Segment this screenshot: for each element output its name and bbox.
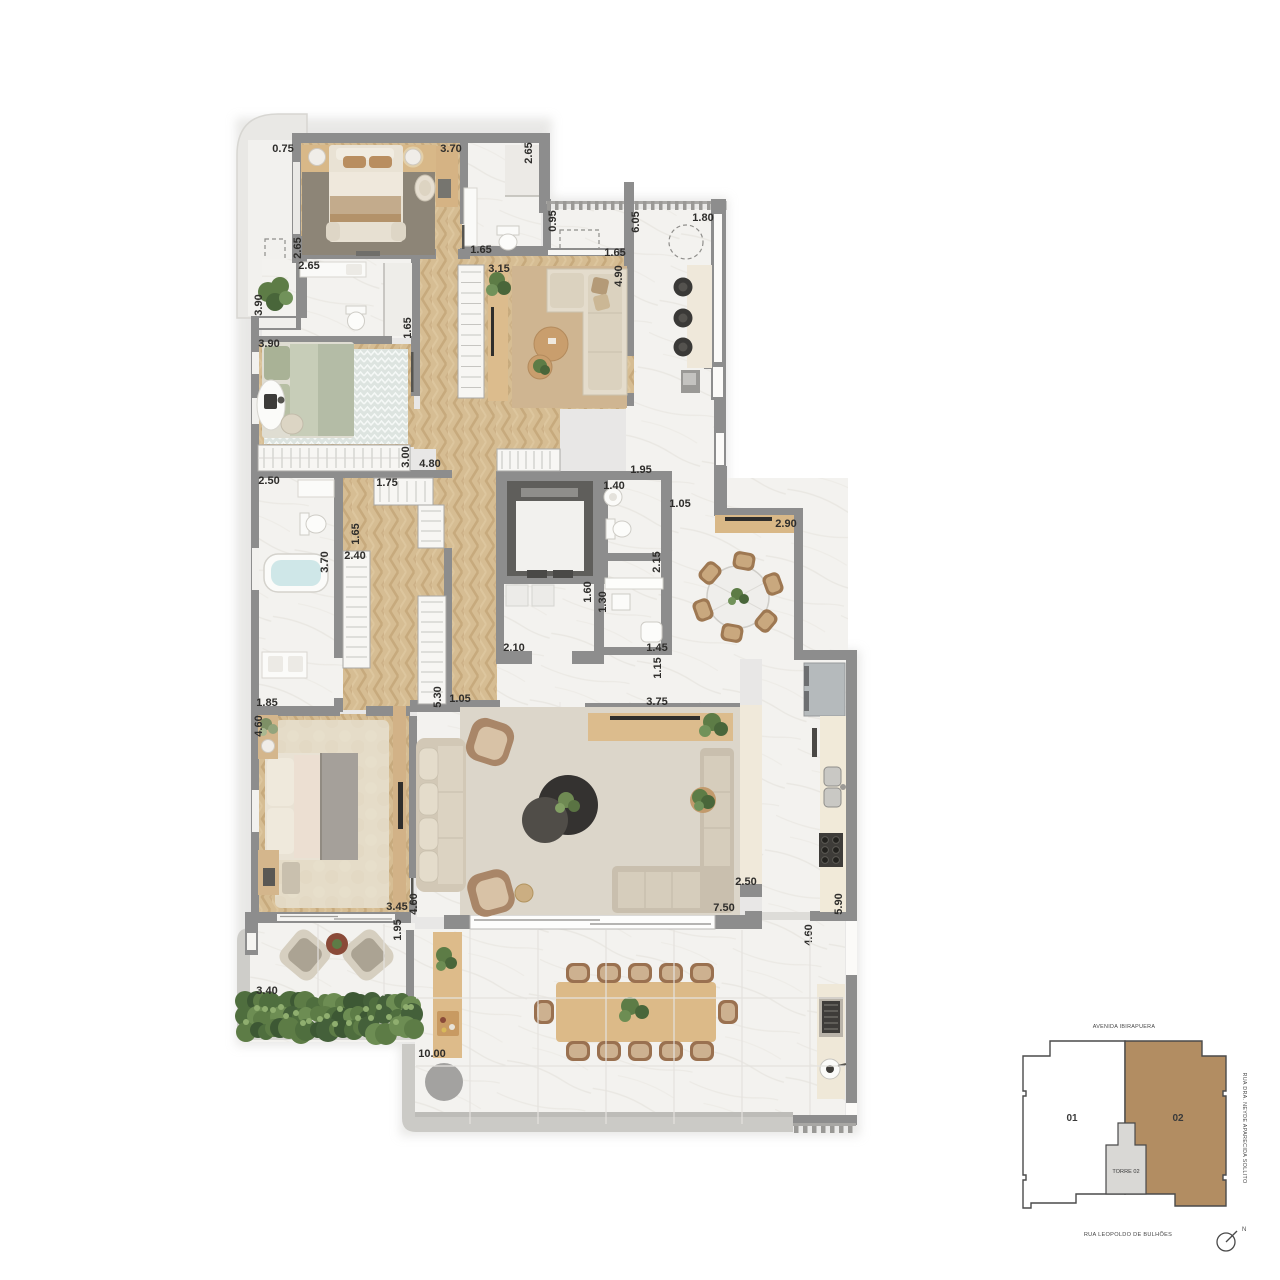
svg-text:1.65: 1.65 <box>604 247 625 259</box>
svg-text:RUA DRA. NEYDE APARECIDA SOLLI: RUA DRA. NEYDE APARECIDA SOLLITO <box>1241 1073 1247 1184</box>
svg-text:5.30: 5.30 <box>432 686 444 707</box>
svg-text:1.95: 1.95 <box>392 919 404 940</box>
svg-text:1.45: 1.45 <box>646 642 667 654</box>
svg-text:1.15: 1.15 <box>652 657 664 678</box>
svg-text:3.45: 3.45 <box>386 901 407 913</box>
svg-text:0.95: 0.95 <box>547 210 559 231</box>
svg-text:1.65: 1.65 <box>350 523 362 544</box>
svg-text:4.90: 4.90 <box>613 265 625 286</box>
svg-text:2.50: 2.50 <box>258 475 279 487</box>
svg-text:3.75: 3.75 <box>646 696 667 708</box>
svg-text:2.10: 2.10 <box>503 642 524 654</box>
svg-text:7.50: 7.50 <box>713 902 734 914</box>
svg-text:2.40: 2.40 <box>344 550 365 562</box>
svg-text:0.75: 0.75 <box>272 143 293 155</box>
svg-text:2.65: 2.65 <box>523 142 535 163</box>
svg-text:RUA LEOPOLDO DE BULHÕES: RUA LEOPOLDO DE BULHÕES <box>1084 1231 1172 1238</box>
svg-text:1.60: 1.60 <box>582 581 594 602</box>
svg-text:3.00: 3.00 <box>400 446 412 467</box>
svg-text:1.75: 1.75 <box>376 477 397 489</box>
svg-text:2.65: 2.65 <box>298 260 319 272</box>
svg-text:4.60: 4.60 <box>253 715 265 736</box>
svg-text:4.60: 4.60 <box>408 893 420 914</box>
svg-text:6.05: 6.05 <box>630 211 642 232</box>
svg-text:4.60: 4.60 <box>803 924 815 945</box>
svg-text:TORRE 02: TORRE 02 <box>1112 1169 1139 1175</box>
svg-text:3.15: 3.15 <box>488 263 509 275</box>
svg-text:02: 02 <box>1172 1113 1184 1124</box>
svg-text:3.40: 3.40 <box>256 985 277 997</box>
svg-text:3.90: 3.90 <box>253 294 265 315</box>
svg-text:5.90: 5.90 <box>833 893 845 914</box>
svg-text:N: N <box>1242 1227 1246 1233</box>
svg-text:3.90: 3.90 <box>258 338 279 350</box>
svg-text:2.50: 2.50 <box>735 876 756 888</box>
svg-text:1.05: 1.05 <box>669 498 690 510</box>
svg-text:1.80: 1.80 <box>692 212 713 224</box>
svg-text:AVENIDA IBIRAPUERA: AVENIDA IBIRAPUERA <box>1093 1024 1156 1030</box>
svg-text:1.65: 1.65 <box>470 244 491 256</box>
svg-text:1.40: 1.40 <box>603 480 624 492</box>
svg-text:2.90: 2.90 <box>775 518 796 530</box>
svg-text:2.65: 2.65 <box>292 237 304 258</box>
svg-text:4.80: 4.80 <box>419 458 440 470</box>
svg-text:3.70: 3.70 <box>440 143 461 155</box>
svg-text:1.05: 1.05 <box>449 693 470 705</box>
svg-text:1.65: 1.65 <box>402 317 414 338</box>
svg-text:3.70: 3.70 <box>319 551 331 572</box>
svg-text:1.85: 1.85 <box>256 697 277 709</box>
svg-text:1.30: 1.30 <box>597 591 609 612</box>
svg-text:2.15: 2.15 <box>651 551 663 572</box>
svg-text:10.00: 10.00 <box>418 1048 446 1060</box>
svg-text:1.95: 1.95 <box>630 464 651 476</box>
svg-text:01: 01 <box>1066 1113 1078 1124</box>
